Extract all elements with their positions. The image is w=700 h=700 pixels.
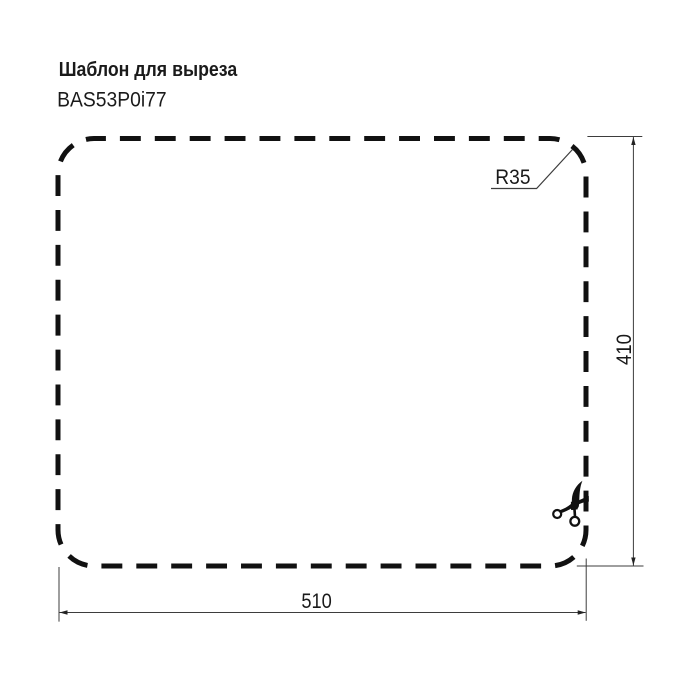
svg-text:R35: R35 bbox=[495, 165, 530, 189]
svg-text:BAS53P0i77: BAS53P0i77 bbox=[57, 88, 167, 112]
svg-text:Шаблон для выреза: Шаблон для выреза bbox=[59, 59, 238, 81]
svg-text:510: 510 bbox=[301, 589, 332, 613]
svg-text:410: 410 bbox=[612, 334, 636, 365]
